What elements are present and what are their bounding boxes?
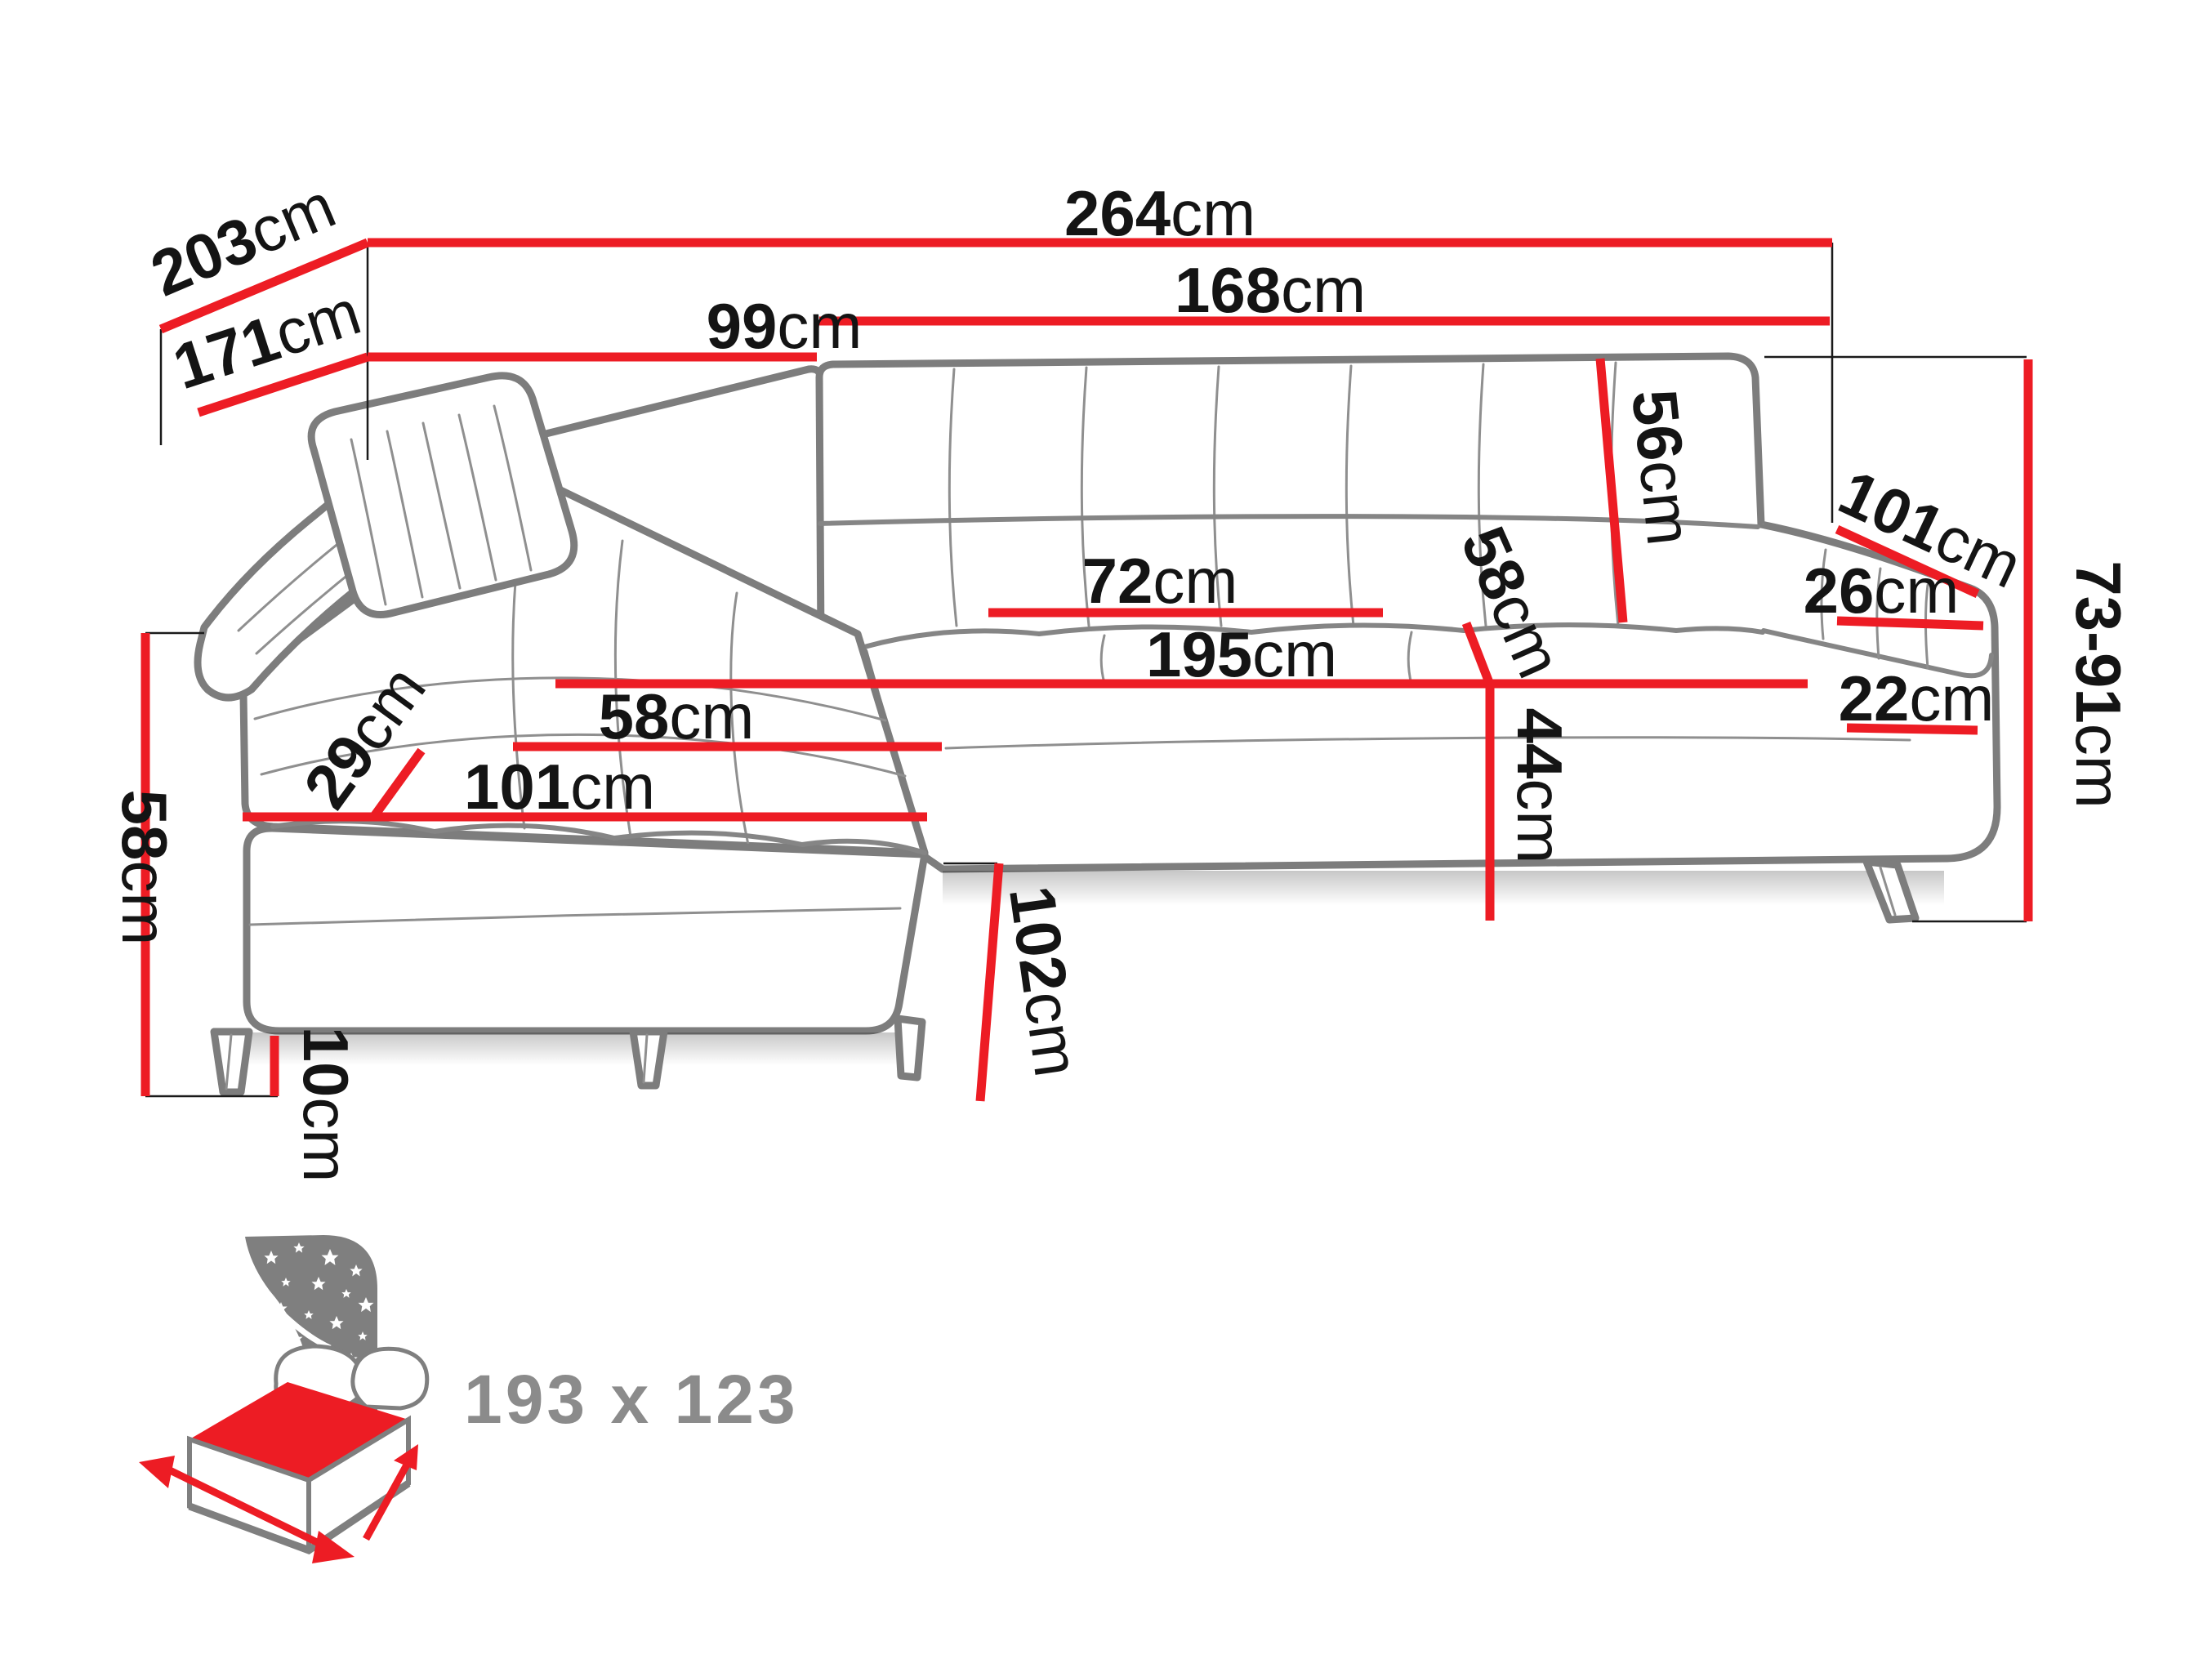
label-armrest-height: 22cm bbox=[1839, 662, 1995, 734]
dimension-diagram: 264cm 203cm 171cm 99cm 168cm 56cm 101cm … bbox=[0, 0, 2212, 1659]
label-chaise-seat-width: 58cm bbox=[599, 680, 755, 752]
label-back-width-right: 168cm bbox=[1175, 254, 1366, 326]
label-back-width-left: 99cm bbox=[707, 290, 863, 362]
sofa-drawing bbox=[198, 356, 1997, 1092]
label-side-height: 58cm bbox=[109, 790, 181, 946]
chaise-front bbox=[247, 828, 925, 1031]
sofa-leg bbox=[898, 1019, 922, 1077]
label-seat-front-width: 195cm bbox=[1146, 618, 1337, 690]
label-total-width: 264cm bbox=[1064, 177, 1255, 249]
shadow-right bbox=[943, 871, 1944, 905]
diagram-canvas: 264cm 203cm 171cm 99cm 168cm 56cm 101cm … bbox=[0, 0, 2212, 1659]
label-armrest-top-width: 26cm bbox=[1804, 555, 1960, 627]
label-chaise-length: 101cm bbox=[464, 751, 655, 823]
label-leg-height: 10cm bbox=[290, 1027, 362, 1183]
headrest-pillow bbox=[311, 376, 574, 615]
sleeping-size-label: 193 x 123 bbox=[464, 1361, 799, 1438]
label-overall-height: 73-91cm bbox=[2063, 560, 2134, 808]
label-seat-height: 44cm bbox=[1504, 708, 1576, 864]
sofa-bed-function-icon: 193 x 123 bbox=[139, 1235, 799, 1563]
pillow-icon bbox=[353, 1349, 427, 1408]
sofa-leg bbox=[633, 1032, 664, 1086]
label-chaise-depth: 102cm bbox=[996, 881, 1094, 1081]
label-back-cushion: 72cm bbox=[1082, 545, 1238, 617]
